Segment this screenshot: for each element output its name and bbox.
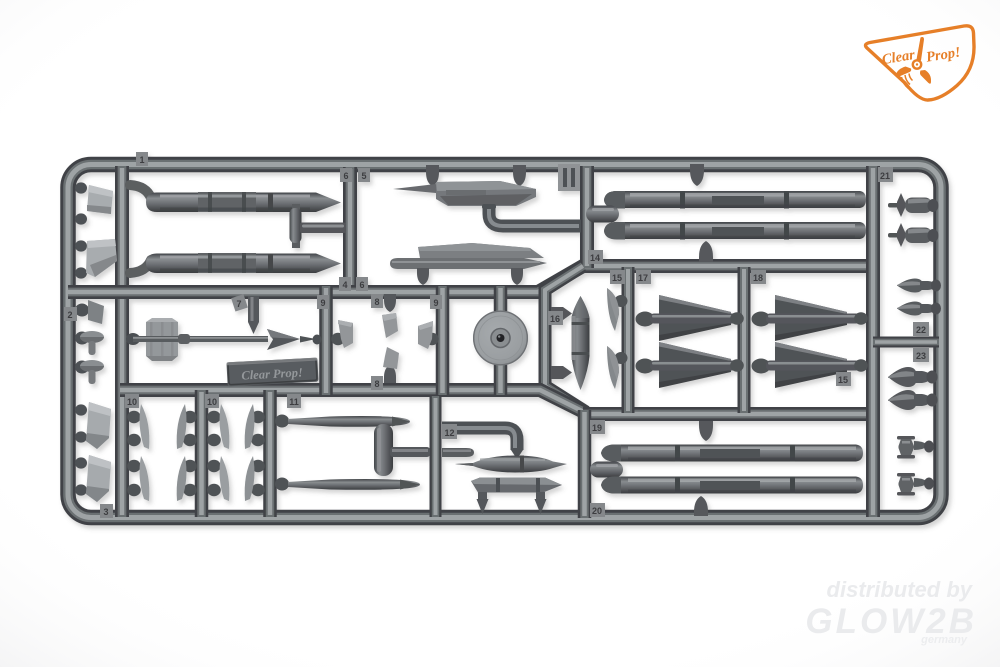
svg-text:10: 10 bbox=[207, 397, 217, 407]
svg-text:distributed by: distributed by bbox=[827, 577, 974, 602]
svg-text:5: 5 bbox=[361, 171, 366, 181]
svg-text:6: 6 bbox=[343, 171, 348, 181]
svg-text:21: 21 bbox=[880, 171, 890, 181]
svg-text:8: 8 bbox=[374, 379, 379, 389]
svg-text:15: 15 bbox=[838, 375, 848, 385]
svg-text:9: 9 bbox=[320, 298, 325, 308]
svg-text:10: 10 bbox=[127, 397, 137, 407]
svg-text:1: 1 bbox=[139, 155, 144, 165]
svg-text:12: 12 bbox=[444, 428, 454, 438]
svg-text:15: 15 bbox=[612, 273, 622, 283]
svg-text:8: 8 bbox=[374, 297, 379, 307]
svg-text:18: 18 bbox=[753, 273, 763, 283]
svg-text:2: 2 bbox=[67, 310, 72, 320]
svg-text:23: 23 bbox=[916, 351, 926, 361]
svg-text:11: 11 bbox=[289, 397, 299, 407]
svg-text:7: 7 bbox=[236, 299, 241, 309]
svg-text:6: 6 bbox=[359, 280, 364, 290]
svg-text:22: 22 bbox=[916, 325, 926, 335]
svg-text:4: 4 bbox=[342, 280, 347, 290]
svg-text:19: 19 bbox=[592, 423, 602, 433]
svg-text:16: 16 bbox=[550, 314, 560, 324]
svg-text:germany: germany bbox=[920, 634, 968, 646]
svg-text:14: 14 bbox=[590, 253, 600, 263]
svg-text:3: 3 bbox=[103, 507, 108, 517]
svg-text:20: 20 bbox=[592, 506, 602, 516]
svg-text:9: 9 bbox=[433, 298, 438, 308]
svg-text:17: 17 bbox=[638, 273, 648, 283]
